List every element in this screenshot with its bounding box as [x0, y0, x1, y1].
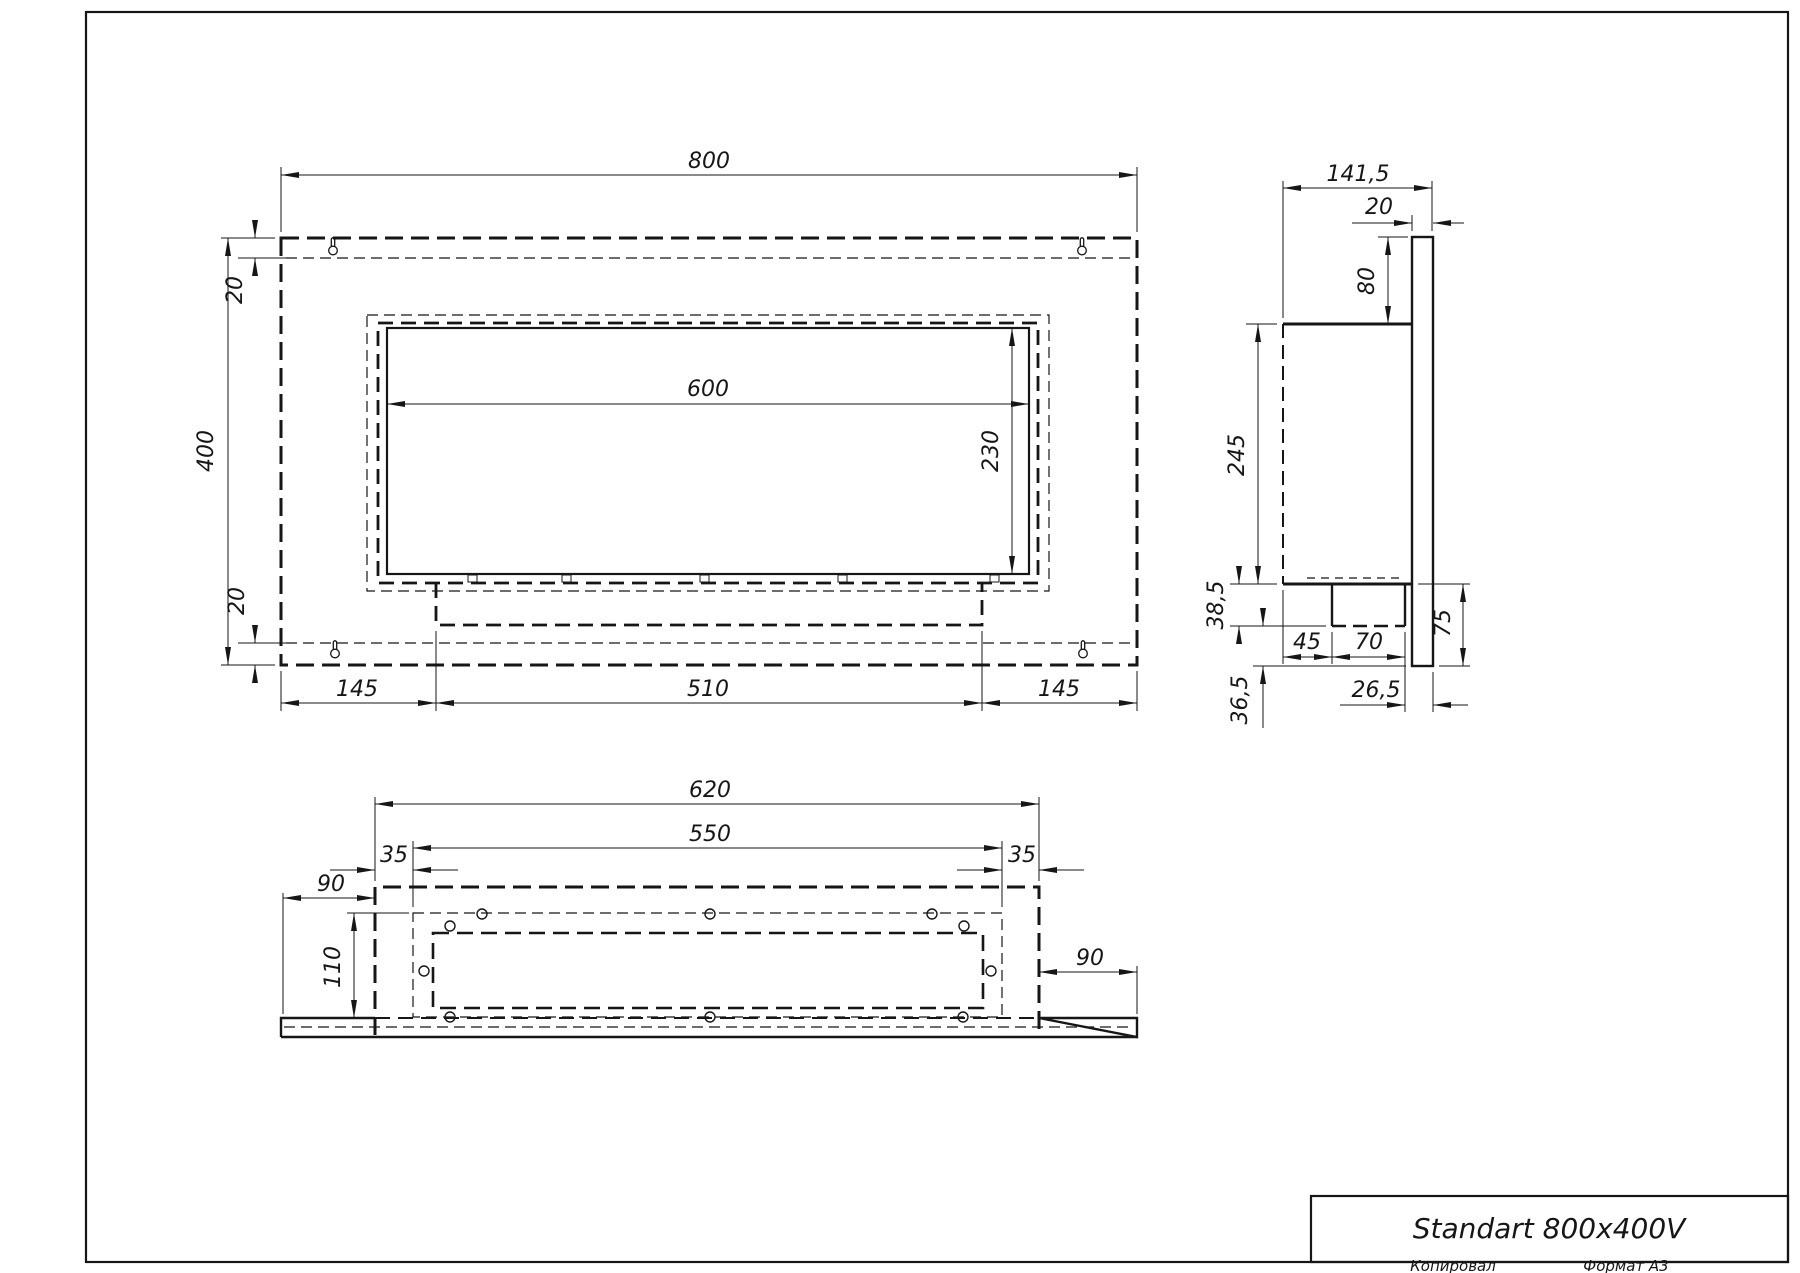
sheet-frame [86, 12, 1788, 1262]
dim-bottom-wing-right: 90 [1076, 946, 1104, 971]
dim-front-opening-height: 230 [979, 430, 1004, 472]
dim-front-overall-height: 400 [194, 430, 219, 472]
bottom-slot-hidden [413, 913, 1002, 1017]
dim-bottom-panel-depth: 110 [321, 946, 346, 988]
side-view: 141,5 20 80 245 38,5 36,5 75 [1204, 162, 1470, 728]
dim-side-tray-offset: 45 [1293, 630, 1321, 655]
dim-side-plate-above-body: 80 [1355, 267, 1380, 295]
dim-side-below-tray: 36,5 [1228, 676, 1253, 725]
dim-bottom-wing-left: 90 [317, 872, 345, 897]
footer-copied-label: Копировал [1410, 1257, 1496, 1273]
front-view: 800 400 20 20 600 230 145 510 145 [194, 149, 1137, 711]
dim-bottom-panel-width: 620 [689, 778, 731, 803]
dim-front-bottom-center: 510 [687, 677, 729, 702]
dim-front-bottom-offset: 20 [225, 587, 250, 615]
bottom-view: 620 550 35 35 90 110 90 [281, 778, 1137, 1037]
dim-bottom-edge-right: 35 [1008, 843, 1036, 868]
front-outer-outline [281, 238, 1137, 665]
dim-side-rear-gap: 26,5 [1352, 678, 1401, 703]
dim-front-top-offset: 20 [223, 276, 248, 304]
front-tray-hidden [436, 583, 982, 625]
screw-holes [419, 909, 996, 1022]
dim-front-opening-width: 600 [687, 377, 729, 402]
dim-side-body-height: 245 [1225, 434, 1250, 476]
dim-bottom-edge-left: 35 [380, 843, 408, 868]
title-block: Standart 800x400V [1311, 1196, 1788, 1262]
dim-front-bottom-right: 145 [1038, 677, 1080, 702]
front-opening-panel [378, 323, 1038, 583]
front-opening-hidden [367, 315, 1049, 591]
drawing-canvas: 800 400 20 20 600 230 145 510 145 [0, 0, 1800, 1273]
front-opening [387, 328, 1029, 574]
dim-bottom-slot-width: 550 [689, 822, 731, 847]
vent-tabs [468, 575, 999, 582]
keyhole-slot-icons [329, 238, 1088, 658]
dim-side-plate-thickness: 20 [1365, 195, 1393, 220]
footer-format-label: Формат A3 [1583, 1257, 1668, 1273]
dim-side-overall-depth: 141,5 [1327, 162, 1390, 187]
drawing-sheet: 800 400 20 20 600 230 145 510 145 [0, 0, 1800, 1273]
dim-side-plate-below-body: 75 [1431, 609, 1456, 637]
bottom-burner-slot [433, 933, 983, 1008]
side-tray [1332, 584, 1405, 626]
dim-front-overall-width: 800 [688, 149, 730, 174]
drawing-title: Standart 800x400V [1413, 1212, 1687, 1245]
dim-side-tray-drop: 38,5 [1204, 581, 1229, 630]
dim-side-tray-width: 70 [1355, 630, 1383, 655]
dim-front-bottom-left: 145 [336, 677, 378, 702]
side-wall-plate [1412, 237, 1433, 666]
sheet-footer: Копировал Формат A3 [1410, 1257, 1669, 1273]
